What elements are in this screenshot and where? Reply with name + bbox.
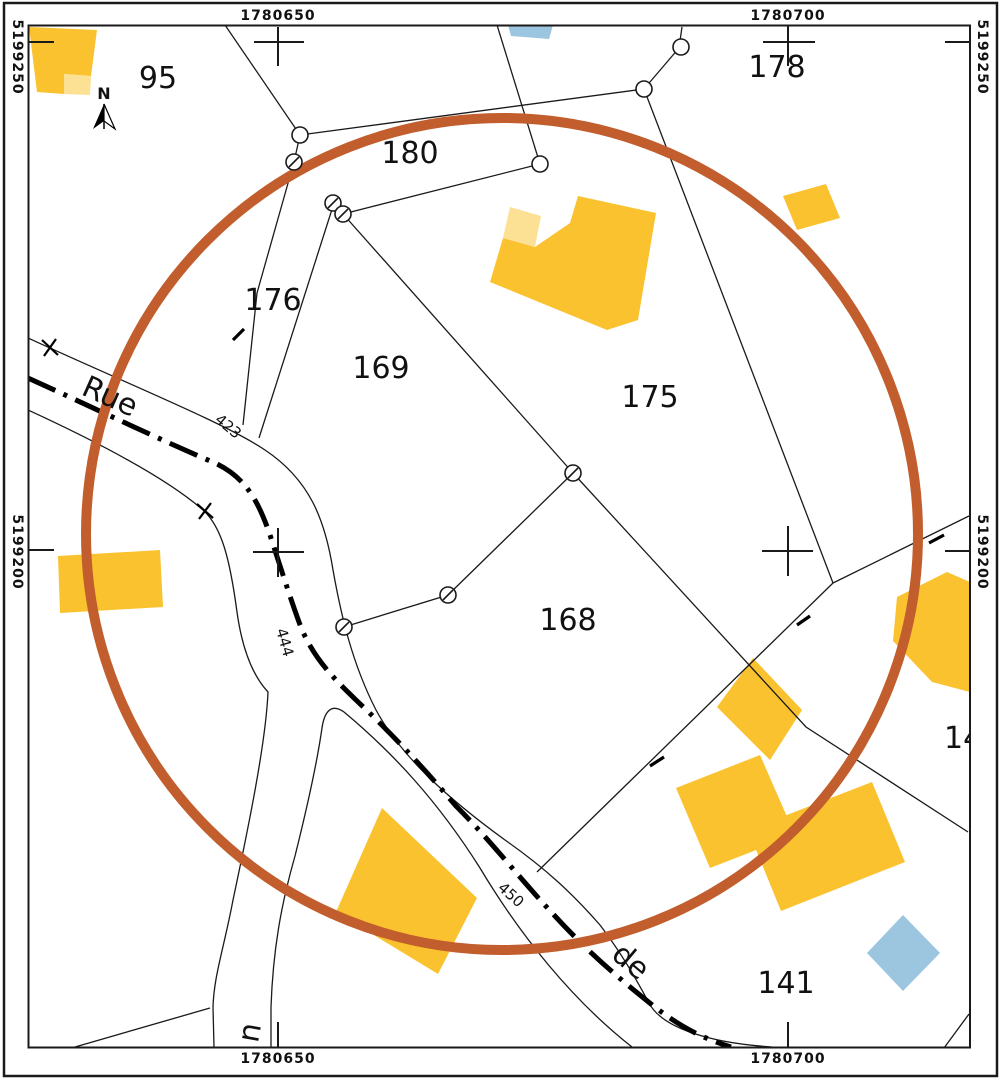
coord-bottom-left: 1780650 <box>240 1051 315 1067</box>
outer-border <box>4 3 997 1076</box>
parcel-label-178: 178 <box>748 50 805 85</box>
parcel-label-169: 169 <box>352 351 409 386</box>
parcel-label-180: 180 <box>381 136 438 171</box>
coord-bottom-right: 1780700 <box>750 1051 825 1067</box>
parcel-label-175: 175 <box>621 380 678 415</box>
cadastral-map-page: 95 178 180 176 169 175 168 141 14 Rue de… <box>0 0 1001 1080</box>
north-arrow: N <box>93 84 115 129</box>
building-blue <box>508 25 553 39</box>
street-name-branch: u <box>234 1021 272 1046</box>
buildings-layer <box>29 25 970 991</box>
coord-right-bottom: 5199200 <box>974 514 990 589</box>
building-annex <box>64 74 91 95</box>
building-blue <box>867 915 940 991</box>
parcel-label-95: 95 <box>139 61 177 96</box>
parcel-label-176: 176 <box>244 283 301 318</box>
building <box>783 184 840 230</box>
street-name-rue: Rue <box>77 369 143 424</box>
coord-left-top: 5199250 <box>9 19 25 94</box>
north-arrow-left-half <box>93 104 104 129</box>
street-name-de: de <box>605 936 656 987</box>
coord-right-top: 5199250 <box>974 19 990 94</box>
coordinate-labels: 1780650 1780700 1780650 1780700 5199250 … <box>9 8 990 1067</box>
road-number-423: 423 <box>211 410 245 442</box>
parcel-label-14-clipped: 14 <box>944 721 982 756</box>
building <box>58 550 163 613</box>
map-canvas[interactable]: 95 178 180 176 169 175 168 141 14 Rue de… <box>0 0 1001 1080</box>
coord-left-bottom: 5199200 <box>9 514 25 589</box>
coord-top-left: 1780650 <box>240 8 315 24</box>
north-arrow-right-half <box>104 104 115 129</box>
road-number-444: 444 <box>272 626 297 658</box>
coord-top-right: 1780700 <box>750 8 825 24</box>
parcel-label-168: 168 <box>539 603 596 638</box>
road-numbers: 423 444 450 <box>211 410 527 911</box>
north-label: N <box>97 84 110 103</box>
map-content: 95 178 180 176 169 175 168 141 14 Rue de… <box>28 25 982 1048</box>
boundary-ticks <box>233 329 944 766</box>
parcel-label-141: 141 <box>757 966 814 1001</box>
